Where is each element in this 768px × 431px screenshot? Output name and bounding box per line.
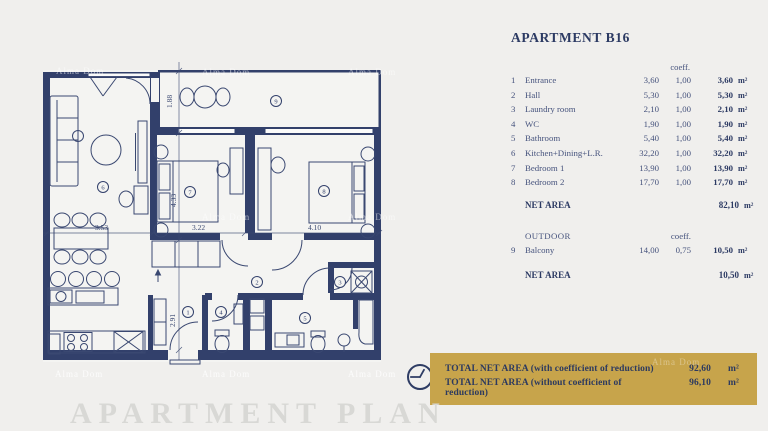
apartment-plan-page: { "watermark": { "text": "Alma Dom" }, "… — [0, 0, 768, 412]
total-unit: m² — [711, 378, 745, 398]
room-2: 2 — [255, 280, 258, 287]
outdoor-label: OUTDOOR — [525, 231, 621, 241]
dim-2-91: 2.91 — [168, 314, 177, 327]
total-label: TOTAL NET AREA (with coefficient of redu… — [445, 364, 661, 378]
area-table-panel: APARTMENT B16 coeff. 1Entrance3,601,003,… — [511, 30, 757, 285]
net-area-value: 10,50 — [647, 270, 739, 280]
table-row: 6Kitchen+Dining+L.R.32,201,0032,20m² — [511, 148, 757, 163]
total-without-coeff-row: TOTAL NET AREA (without coefficient of r… — [445, 378, 745, 392]
net-area-label: NET AREA — [525, 200, 647, 210]
dim-4-10: 4.10 — [308, 223, 321, 232]
net-area-row: NET AREA 82,10 m² — [511, 200, 757, 215]
room-5: 5 — [303, 316, 306, 323]
coeff-header: coeff. — [659, 62, 691, 75]
room-9: 9 — [274, 99, 277, 106]
floor-plan-drawing: 3.53 3.22 4.10 4.33 2.91 1.88 1 2 3 4 5 … — [0, 0, 450, 412]
room-8: 8 — [322, 189, 325, 196]
dim-3-22: 3.22 — [192, 223, 205, 232]
apartment-footprint — [43, 70, 381, 362]
total-label: TOTAL NET AREA (without coefficient of r… — [445, 378, 661, 398]
table-row: 1Entrance3,601,003,60m² — [511, 75, 757, 90]
dim-1-88: 1.88 — [165, 95, 174, 108]
dim-4-33: 4.33 — [169, 194, 178, 207]
net-area-value: 82,10 — [647, 200, 739, 210]
outdoor-net-area-row: NET AREA 10,50 m² — [511, 270, 757, 285]
net-area-label: NET AREA — [525, 270, 647, 280]
total-value: 96,10 — [661, 378, 711, 398]
table-row-balcony: 9Balcony14,000,7510,50m² — [511, 245, 757, 260]
footer-caption: APARTMENT PLAN — [70, 397, 447, 431]
outdoor-coeff-header: coeff. — [659, 231, 691, 241]
dim-3-53: 3.53 — [95, 223, 108, 232]
total-with-coeff-row: TOTAL NET AREA (with coefficient of redu… — [445, 364, 745, 378]
total-value: 92,60 — [661, 364, 711, 378]
table-row: 4WC1,901,001,90m² — [511, 119, 757, 134]
room-3: 3 — [338, 280, 341, 287]
table-row: 5Bathroom5,401,005,40m² — [511, 133, 757, 148]
total-unit: m² — [711, 364, 745, 378]
coeff-header-row: coeff. — [511, 62, 757, 75]
page-title: APARTMENT B16 — [511, 30, 757, 46]
table-row: 8Bedroom 217,701,0017,70m² — [511, 177, 757, 192]
total-net-area-banner: TOTAL NET AREA (with coefficient of redu… — [430, 353, 757, 405]
outdoor-header-row: OUTDOOR coeff. — [511, 231, 757, 246]
floor-plan: 3.53 3.22 4.10 4.33 2.91 1.88 1 2 3 4 5 … — [0, 0, 450, 412]
table-row: 2Hall5,301,005,30m² — [511, 90, 757, 105]
table-row: 7Bedroom 113,901,0013,90m² — [511, 163, 757, 178]
table-row: 3Laundry room2,101,002,10m² — [511, 104, 757, 119]
room-1: 1 — [186, 310, 189, 317]
